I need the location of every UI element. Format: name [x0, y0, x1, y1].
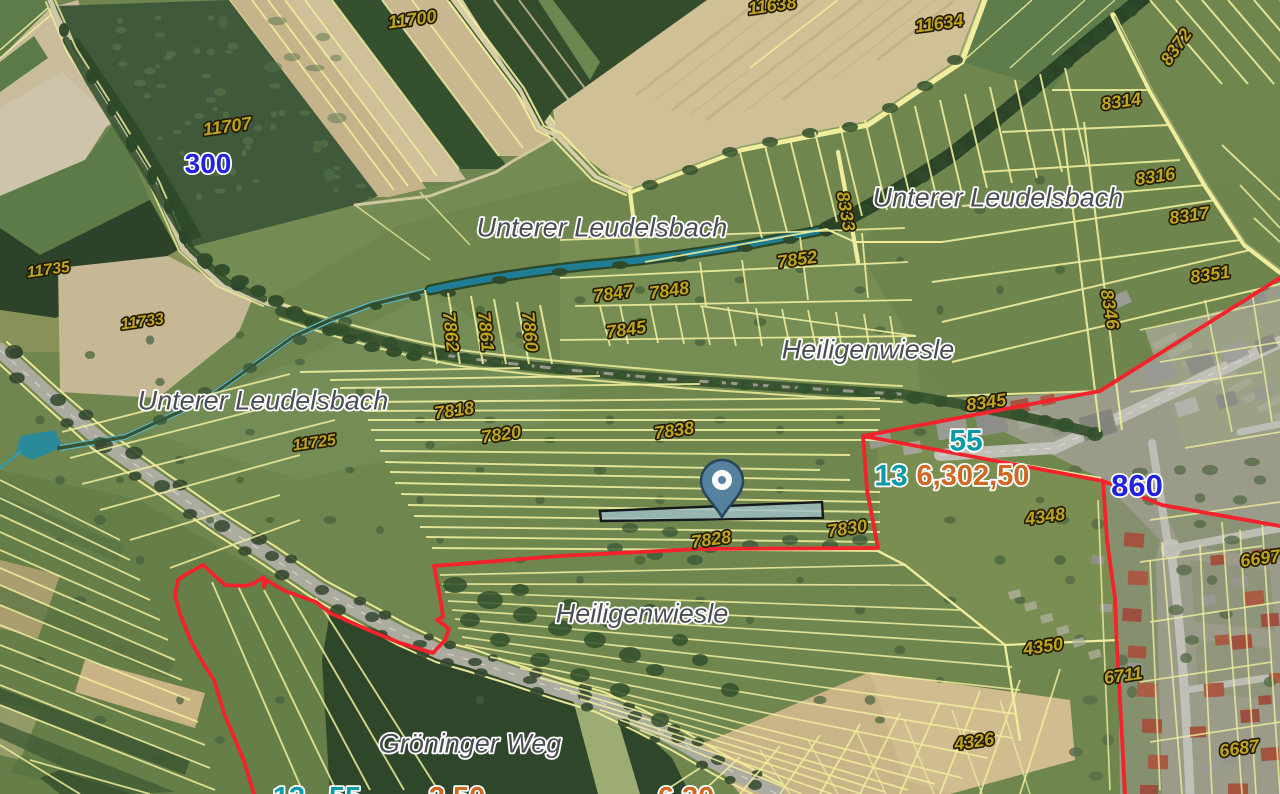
svg-text:6,302,50: 6,302,50 — [917, 460, 1030, 492]
svg-text:7861: 7861 — [474, 311, 498, 353]
svg-text:6,30: 6,30 — [658, 782, 714, 794]
svg-text:Unterer Leudelsbach: Unterer Leudelsbach — [477, 212, 728, 242]
svg-text:Heiligenwiesle: Heiligenwiesle — [556, 598, 729, 628]
svg-text:Unterer Leudelsbach: Unterer Leudelsbach — [138, 385, 389, 415]
svg-text:2,50: 2,50 — [429, 782, 485, 794]
svg-text:55: 55 — [949, 425, 982, 458]
svg-text:Unterer Leudelsbach: Unterer Leudelsbach — [873, 182, 1124, 212]
svg-text:300: 300 — [185, 148, 232, 179]
svg-text:Gröninger Weg: Gröninger Weg — [379, 728, 562, 758]
svg-text:55: 55 — [329, 782, 361, 794]
svg-text:860: 860 — [1111, 468, 1163, 503]
svg-text:7862: 7862 — [439, 311, 463, 353]
svg-text:Heiligenwiesle: Heiligenwiesle — [782, 334, 955, 364]
svg-text:13: 13 — [874, 460, 907, 493]
svg-text:13: 13 — [273, 782, 305, 794]
svg-text:7860: 7860 — [518, 311, 542, 353]
